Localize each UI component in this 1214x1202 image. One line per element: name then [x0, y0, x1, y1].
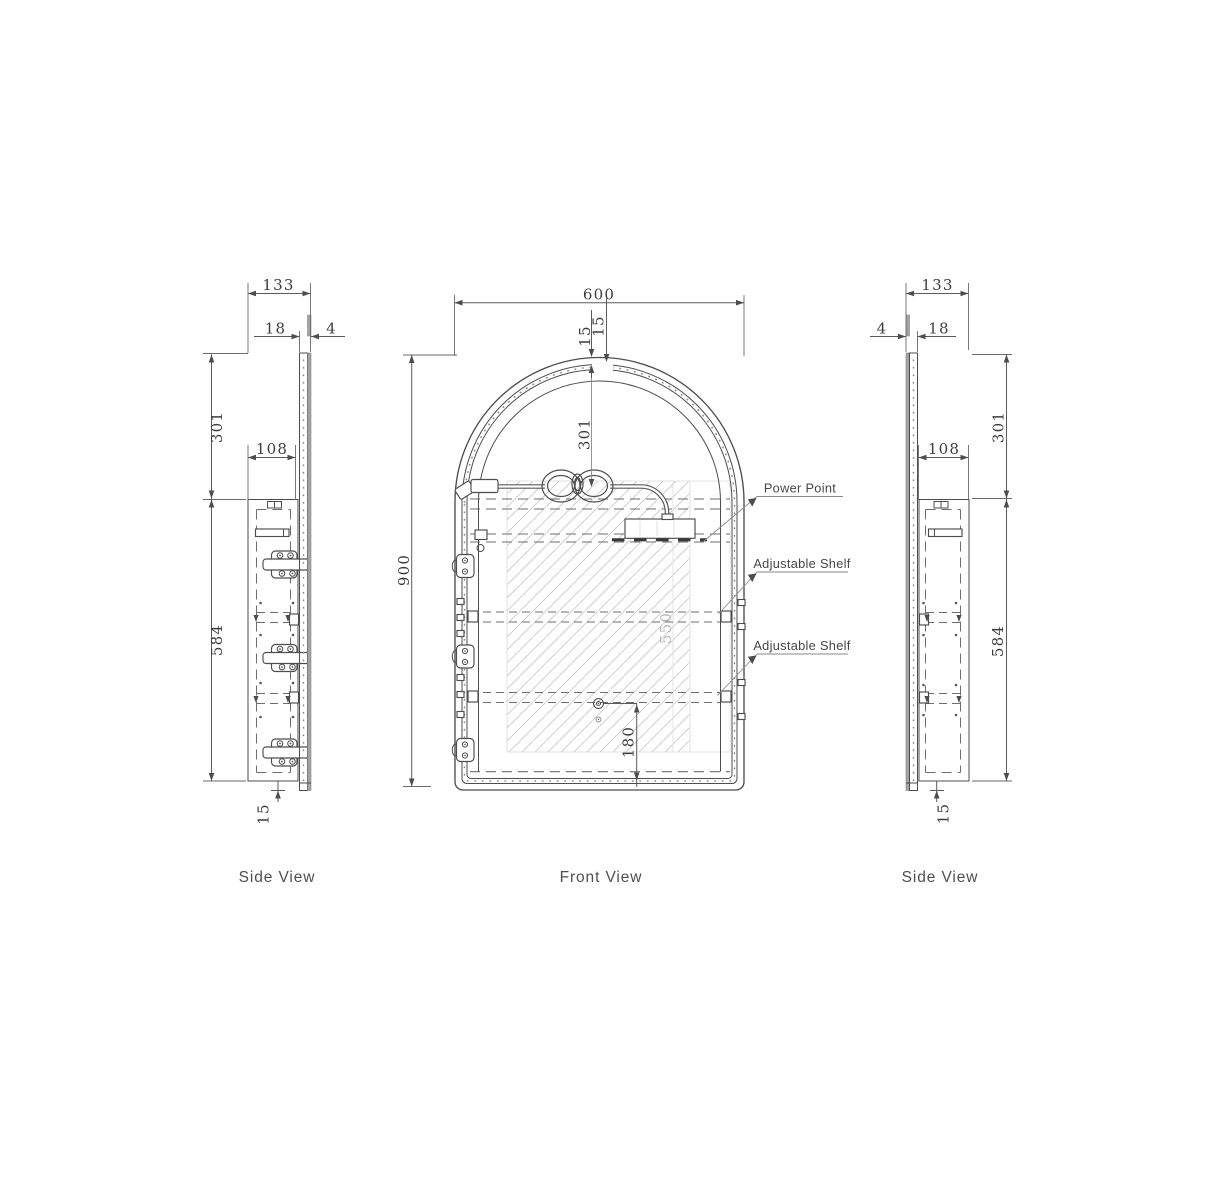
dim-cabinet-height: 584 [989, 625, 1007, 657]
dim-door-thickness: 18 [928, 320, 950, 338]
dim-door-thickness: 18 [265, 320, 287, 338]
dim-bottom-overhang: 15 [255, 803, 273, 825]
dim-internal-height: 550 [657, 612, 675, 644]
dim-frame-b: 15 [590, 315, 608, 337]
side-view-left-label: Side View [239, 869, 316, 886]
dim-mirror-thickness: 4 [877, 320, 888, 338]
cabinet-carcass-outline [919, 500, 969, 782]
dim-cabinet-depth: 108 [928, 440, 960, 458]
dim-arch-height: 301 [576, 418, 594, 450]
technical-drawing-page: 133 18 4 108 301 584 15 [0, 0, 1214, 1202]
dim-cabinet-depth: 108 [256, 440, 288, 458]
side-view-right-label: Side View [902, 869, 979, 886]
front-view: 600 15 15 301 900 550 180 Power Point Ad… [395, 286, 851, 791]
dim-cabinet-height: 584 [208, 624, 226, 656]
dim-bottom-overhang: 15 [935, 803, 953, 825]
cabinet-dimension-drawing: 133 18 4 108 301 584 15 [0, 0, 1214, 1202]
power-point-label: Power Point [764, 481, 836, 496]
dim-width: 600 [583, 286, 615, 304]
view-labels: Side View Front View Side View [239, 869, 979, 886]
dim-mirror-thickness: 4 [326, 320, 337, 338]
hanging-rail [929, 529, 963, 537]
mirror-glass-profile [308, 353, 312, 791]
side-view-right: 133 4 18 108 301 584 15 [870, 276, 1012, 824]
dim-power-height: 180 [620, 726, 638, 758]
door-panel-profile [300, 353, 308, 791]
dim-arch-height: 301 [208, 411, 226, 443]
side-view-left: 133 18 4 108 301 584 15 [203, 276, 345, 825]
front-view-label: Front View [560, 869, 643, 886]
dim-overall-depth: 133 [921, 276, 953, 294]
adjustable-shelf-label: Adjustable Shelf [753, 556, 850, 571]
dim-arch-height: 301 [990, 411, 1008, 443]
door-panel-profile [910, 353, 918, 791]
plug [471, 480, 498, 493]
mirror-glass-profile [906, 353, 910, 791]
callout-power-point: Power Point [704, 481, 843, 542]
adjustable-shelf-label: Adjustable Shelf [753, 638, 850, 653]
dim-height: 900 [395, 554, 413, 586]
dim-overall-depth: 133 [262, 276, 294, 294]
